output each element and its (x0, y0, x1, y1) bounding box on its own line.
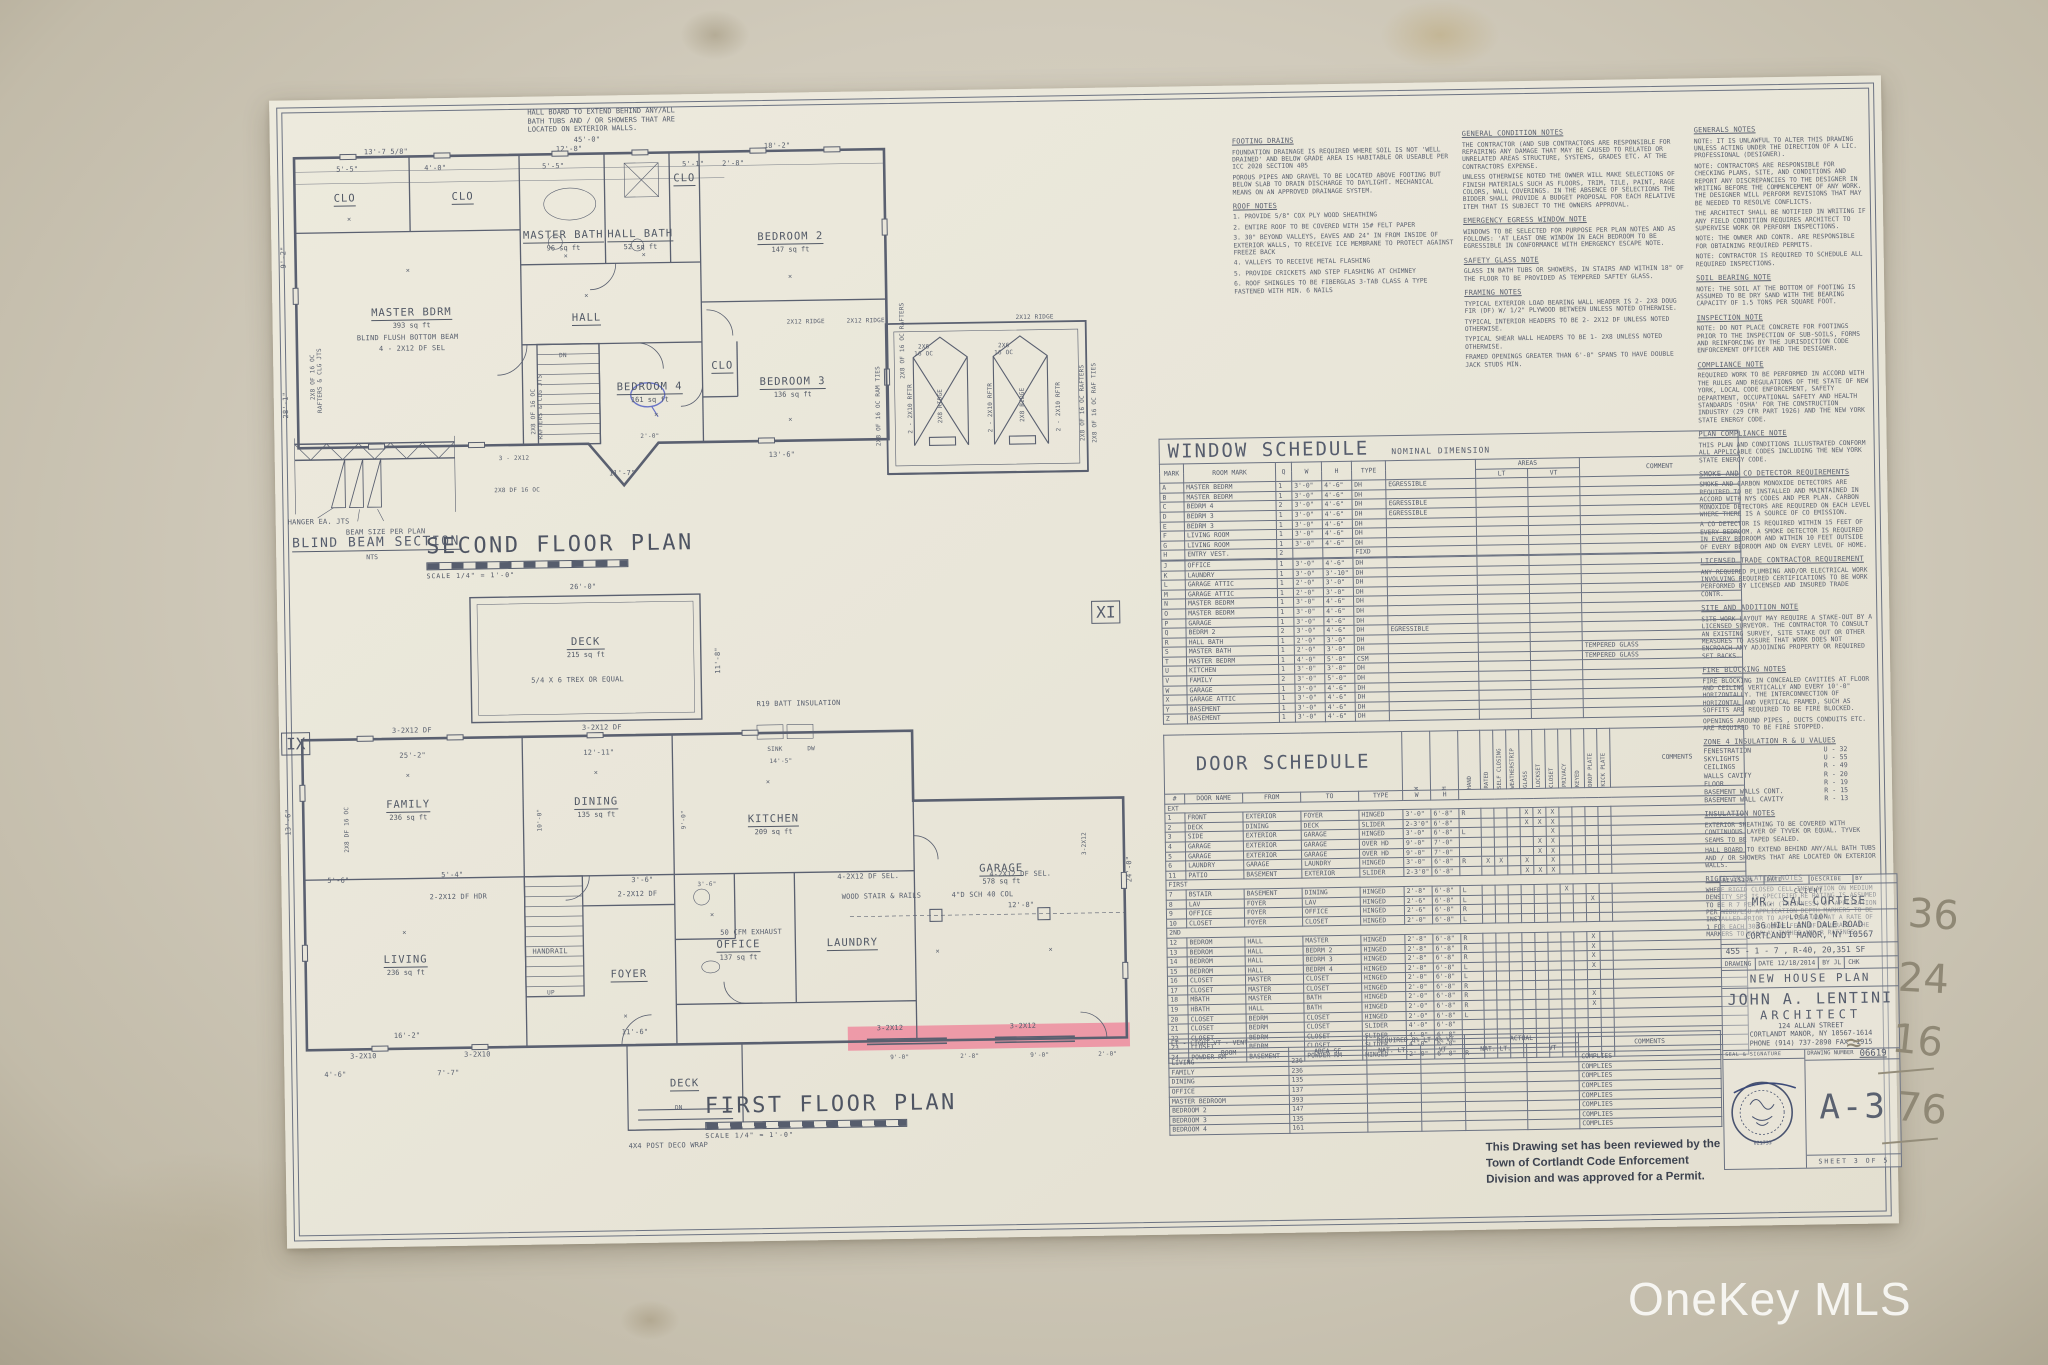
window-cell: DH (1355, 711, 1389, 721)
window-cell: R (1162, 638, 1186, 648)
window-col-header: TYPE (1351, 461, 1385, 481)
door-flag-cell (1575, 980, 1588, 990)
window-schedule-table: MARKROOM MARKQWHTYPEAREASCOMMENTLTVTAMAS… (1159, 455, 1744, 725)
door-flag-cell (1562, 980, 1575, 990)
window-cell: E (1160, 521, 1184, 531)
door-cell: 6'-8" (1432, 886, 1460, 896)
door-col-header: W (1402, 731, 1431, 790)
window-cell: 1 (1277, 588, 1293, 598)
door-flag-cell (1548, 970, 1561, 980)
door-flag-cell (1509, 933, 1522, 943)
blind-beam-title: BLIND BEAM SECTION (292, 534, 460, 553)
second-floor-annotation: × (641, 251, 646, 259)
insulation-value: R - 13 (1824, 794, 1848, 803)
window-cell: 3'-0" (1294, 597, 1324, 607)
door-cell: 3 (1165, 832, 1185, 842)
window-cell: O (1162, 609, 1186, 619)
door-flag-cell (1573, 855, 1586, 865)
door-flag-cell (1575, 1018, 1588, 1028)
door-schedule-title: DOOR SCHEDULE (1167, 757, 1400, 769)
door-flag-cell: X (1586, 893, 1599, 903)
door-flag-cell: X (1587, 941, 1600, 951)
note-paragraph: NOTE: CONTRACTORS ARE RESPONSIBLE FOR CH… (1694, 160, 1867, 207)
door-cell: 7'-0" (1431, 838, 1459, 848)
first-floor-annotation: WOOD STAIR & RAILS (842, 892, 922, 901)
second-floor-annotation: 9'-2" (279, 246, 287, 268)
note-heading: EMERGENCY EGRESS WINDOW NOTE (1463, 214, 1689, 226)
first-floor-annotation: 26'-0" (570, 583, 597, 591)
window-cell: DH (1353, 586, 1387, 596)
door-flag-cell: X (1587, 931, 1600, 941)
window-cell: 1 (1279, 693, 1295, 703)
window-col-header: ROOM MARK (1183, 462, 1275, 483)
door-cell: 6'-8" (1433, 934, 1461, 944)
door-cell: 21 (1168, 1024, 1188, 1034)
room-name: DECK (567, 636, 605, 651)
door-flag-cell (1573, 893, 1586, 903)
door-cell: 2'-8" (1405, 953, 1433, 963)
sheet-of: SHEET 3 OF 5 (1807, 1153, 1901, 1167)
light-vent-cell: BEDROOM 4 (1170, 1124, 1290, 1135)
door-flag-cell (1535, 971, 1548, 981)
door-cell: 2'-0" (1405, 915, 1433, 925)
window-cell: 4'-6" (1325, 683, 1355, 693)
window-cell: DH (1352, 499, 1386, 509)
door-cell (1459, 818, 1481, 828)
room-name: CLO (452, 191, 474, 205)
window-cell: N (1162, 599, 1186, 609)
window-cell: 2 (1277, 549, 1293, 559)
first-floor-annotation: 10'-0" (536, 809, 544, 832)
door-flag-cell (1560, 903, 1573, 913)
note-paragraph: GLASS IN BATH TUBS OR SHOWERS, IN STAIRS… (1464, 265, 1690, 283)
second-floor-annotation: 5'-5" (542, 162, 564, 170)
door-flag-cell (1520, 836, 1533, 846)
window-cell: 2'-0" (1293, 587, 1323, 597)
second-floor-room-label: MASTER BATH96 sq ft (523, 228, 604, 252)
window-cell: 3'-0" (1292, 500, 1322, 510)
door-flag-cell (1535, 961, 1548, 971)
handwritten-number: 76 (1894, 1084, 1949, 1134)
door-cell: 20 (1168, 1015, 1188, 1025)
door-cell: L (1459, 828, 1481, 838)
framing-detail-annotation: 2X12 RIDGE (1016, 313, 1054, 322)
first-floor-annotation: 11'-6" (622, 1028, 649, 1036)
revision-col: DESCRIBE (1809, 875, 1853, 884)
window-cell: 3'-10" (1323, 568, 1353, 578)
door-flag-cell (1572, 836, 1585, 846)
window-cell (1323, 548, 1353, 558)
window-cell: 4'-6" (1325, 702, 1355, 712)
door-cell: 18 (1168, 995, 1188, 1005)
window-cell: H (1161, 550, 1185, 560)
window-cell: 3'-0" (1294, 626, 1324, 636)
door-flag-cell (1483, 962, 1496, 972)
first-floor-room-label: FOYER (610, 968, 647, 983)
door-flag-cell (1482, 866, 1495, 876)
room-name: OFFICE (716, 938, 760, 953)
title-block: REVISION DATE DESCRIBE BY CLIENT MR. SAL… (1719, 873, 1902, 1170)
room-name: HALL BATH (607, 227, 673, 242)
seal-and-number-row: SEAL & SIGNATURE 021735 DRAWING NUMBE (1723, 1048, 1901, 1169)
room-area: 147 sq ft (757, 245, 823, 254)
door-flag-cell (1534, 903, 1547, 913)
drawing-chk: CHK (1845, 957, 1863, 968)
door-flag-cell (1575, 989, 1588, 999)
note-paragraph: THE CONTRACTOR (AND SUB CONTRACTORS ARE … (1462, 138, 1688, 171)
door-cell: 9'-0" (1403, 838, 1431, 848)
plan-title-text: FIRST FLOOR PLAN (705, 1090, 957, 1119)
door-flag-cell (1586, 855, 1599, 865)
door-flag-header: SELF CLOSING (1493, 730, 1507, 789)
door-flag-cell (1598, 845, 1611, 855)
first-floor-annotation: 3-2X12 (1081, 832, 1089, 855)
window-cell: B (1160, 493, 1184, 503)
window-cell: 3'-0" (1323, 577, 1353, 587)
door-col-header-text: HAND (1466, 775, 1472, 789)
second-floor-annotation: 2X12 RIDGE (787, 318, 825, 327)
door-cell: 6'-8" (1434, 1010, 1462, 1020)
door-flag-cell (1574, 941, 1587, 951)
light-vent-cell (1368, 1122, 1422, 1132)
second-floor-annotation: 2'-8" (722, 159, 744, 167)
window-cell: 3'-0" (1293, 538, 1323, 548)
second-floor-annotation: 45'-0" (574, 136, 601, 144)
first-floor-annotation: R19 BATT INSULATION (757, 699, 841, 708)
door-cell: 4'-0" (1406, 1020, 1434, 1030)
door-cell: R (1462, 991, 1484, 1001)
door-flag-cell (1523, 990, 1536, 1000)
door-col-header: # (1165, 794, 1185, 804)
framing-detail-labels: 2X616 OC2X616 OC2X8 RIDGE2X8 RIDGE2 - 2X… (878, 313, 1096, 491)
note-paragraph: 3. 30" BEYOND VALLEYS, EAVES AND 24" IN … (1233, 231, 1455, 257)
location-row: LOCATION 36 HILL AND DALE ROAD CORTLANDT… (1721, 909, 1897, 945)
door-flag-header-text: LOCKSET (1536, 764, 1542, 788)
first-floor-annotation: × (1048, 946, 1053, 954)
door-flag-cell (1508, 885, 1521, 895)
window-cell: DH (1354, 615, 1388, 625)
note-paragraph: TYPICAL EXTERIOR LOAD BEARING WALL HEADE… (1464, 297, 1690, 315)
window-cell: DH (1352, 480, 1386, 490)
door-cell: 6'-8" (1432, 895, 1460, 905)
framing-detail-annotation: 2X8 OF 16 OC RAF TIES (1090, 363, 1099, 443)
door-flag-cell: X (1521, 856, 1534, 866)
door-flag-cell (1562, 999, 1575, 1009)
scale-note: SCALE 1/4" = 1'-0" (427, 568, 695, 580)
window-cell: Z (1163, 714, 1187, 724)
first-floor-room-label: LIVING236 sq ft (384, 953, 428, 977)
second-floor-annotation: × (406, 267, 411, 275)
door-flag-cell (1585, 826, 1598, 836)
door-cell: L (1461, 972, 1483, 982)
door-cell: 6'-8" (1431, 818, 1459, 828)
first-floor-annotation: 3-2X10 (464, 1050, 491, 1058)
door-flag-cell (1547, 903, 1560, 913)
door-flag-cell (1522, 952, 1535, 962)
room-name: LIVING (384, 953, 428, 968)
door-flag-cell (1522, 913, 1535, 923)
door-flag-cell (1494, 846, 1507, 856)
door-cell: 2'-8" (1404, 886, 1432, 896)
second-floor-room-label: BEDROOM 2147 sq ft (757, 230, 823, 254)
door-cell: 14 (1167, 957, 1187, 967)
door-flag-cell (1483, 943, 1496, 953)
door-flag-cell (1549, 990, 1562, 1000)
door-schedule-title-cell: DOOR SCHEDULE (1164, 732, 1403, 795)
door-cell (1459, 837, 1481, 847)
second-floor-annotation: × (654, 411, 659, 419)
first-floor-room-label: KITCHEN209 sq ft (748, 812, 800, 836)
architect-phone: PHONE (914) 737-2890 FAX -1915 (1727, 1037, 1895, 1048)
window-cell: 4'-6" (1323, 538, 1353, 548)
door-flag-cell (1561, 941, 1574, 951)
second-floor-room-label: HALL BATH52 sq ft (607, 227, 673, 251)
door-flag-cell (1601, 998, 1614, 1008)
window-cell: F (1160, 531, 1184, 541)
client-name: MR. SAL CORTESE (1725, 893, 1893, 909)
window-cell: 4'-6" (1322, 500, 1352, 510)
second-floor-annotation: 3 - 2X12 (499, 455, 530, 463)
door-cell: 6'-8" (1434, 1001, 1462, 1011)
window-cell: C (1160, 502, 1184, 512)
window-cell: 3'-0" (1294, 616, 1324, 626)
door-flag-cell (1559, 826, 1572, 836)
door-flag-cell (1481, 837, 1494, 847)
door-flag-cell: X (1587, 960, 1600, 970)
door-flag-cell: X (1546, 807, 1559, 817)
door-cell: 8 (1166, 899, 1186, 909)
note-heading: ROOF NOTES (1233, 199, 1455, 211)
door-flag-cell (1547, 894, 1560, 904)
window-cell: DH (1354, 606, 1388, 616)
window-cell: CSM (1354, 654, 1388, 664)
door-flag-cell (1535, 913, 1548, 923)
room-name: MASTER BDRM (371, 306, 452, 321)
second-floor-annotation: × (347, 215, 352, 223)
second-floor-room-label: CLO (334, 192, 356, 206)
room-name: FOYER (610, 968, 647, 983)
door-col-header: W (1403, 790, 1431, 800)
stain (680, 10, 750, 60)
drawing-date: DATE 12/18/2014 (1755, 957, 1819, 969)
door-flag-cell (1521, 904, 1534, 914)
door-flag-cell (1481, 818, 1494, 828)
second-floor-annotation: 5'-1" (682, 160, 704, 168)
note-paragraph: THE ARCHITECT SHALL BE NOTIFIED IN WRITI… (1695, 208, 1867, 233)
door-flag-cell (1510, 981, 1523, 991)
door-flag-cell (1574, 932, 1587, 942)
window-cell: 3'-0" (1292, 481, 1322, 491)
door-flag-cell (1573, 864, 1586, 874)
second-floor-annotation: 2X8 DF 16 OC (494, 487, 540, 496)
blind-beam-nts: NTS (366, 553, 378, 561)
door-flag-cell (1572, 845, 1585, 855)
note-heading: INSPECTION NOTE (1697, 311, 1869, 322)
window-cell: 4'-0" (1294, 655, 1324, 665)
door-flag-header: KICK PLATE (1597, 728, 1611, 787)
door-schedule-table: DOOR SCHEDULEWHHANDRATEDSELF CLOSINGWEAT… (1163, 726, 1749, 1064)
door-cell: 6'-8" (1433, 972, 1461, 982)
door-flag-cell (1599, 883, 1612, 893)
client-row: CLIENT MR. SAL CORTESE (1721, 883, 1897, 912)
first-floor-annotation: 13'-6" (284, 809, 292, 836)
general-condition-notes-column: GENERAL CONDITION NOTESTHE CONTRACTOR (A… (1462, 120, 1692, 368)
door-flag-header: GLASS (1519, 729, 1533, 788)
framing-detail-annotation: 16 OC (994, 349, 1013, 357)
first-floor-room-label: DECK215 sq ft (567, 636, 605, 660)
framing-detail-annotation: 2X8 OF 16 OC RAM TIES (874, 366, 883, 446)
window-cell: 3'-0" (1294, 607, 1324, 617)
framing-detail-annotation: 2 - 2X10 RFTR (907, 384, 916, 434)
framing-detail-annotation: 2X8 RIDGE (1019, 388, 1028, 422)
note-paragraph: REQUIRED WORK TO BE PERFORMED IN ACCORD … (1698, 370, 1871, 425)
plan-title-text: SECOND FLOOR PLAN (426, 530, 694, 559)
door-cell: 6'-8" (1432, 866, 1460, 876)
window-cell: 4'-6" (1322, 509, 1352, 519)
note-paragraph: FRAMED OPENINGS GREATER THAN 6'-0" SPANS… (1465, 351, 1691, 369)
first-floor-room-label: OFFICE137 sq ft (716, 938, 760, 962)
framing-detail-annotation: 2X8 OF 16 OC RAFTERS (1078, 365, 1087, 441)
door-flag-cell (1587, 970, 1600, 980)
door-flag-cell (1494, 837, 1507, 847)
window-cell: 5'-0" (1324, 654, 1354, 664)
door-flag-cell (1547, 884, 1560, 894)
room-area: 393 sq ft (371, 321, 452, 330)
door-flag-cell (1600, 950, 1613, 960)
second-floor-annotation: 11'-7" (609, 469, 636, 477)
door-cell: 3'-0" (1403, 809, 1431, 819)
door-flag-header-text: GLASS (1523, 771, 1529, 788)
door-flag-cell (1483, 952, 1496, 962)
door-flag-cell (1494, 818, 1507, 828)
door-flag-cell (1599, 902, 1612, 912)
room-name: BEDROOM 2 (757, 230, 823, 245)
door-flag-cell: X (1520, 808, 1533, 818)
door-cell: 7 (1166, 890, 1186, 900)
door-flag-cell: X (1546, 826, 1559, 836)
door-flag-header-text: KICK PLATE (1601, 753, 1608, 787)
note-paragraph: 2. ENTIRE ROOF TO BE COVERED WITH 15# FE… (1233, 221, 1455, 232)
door-flag-cell (1562, 989, 1575, 999)
door-flag-cell (1533, 827, 1546, 837)
window-cell: DH (1352, 528, 1386, 538)
door-flag-cell (1574, 912, 1587, 922)
door-cell: 19 (1168, 1005, 1188, 1015)
door-flag-cell (1601, 1017, 1614, 1027)
architect-seal-icon: 021735 (1721, 1064, 1802, 1157)
door-cell: R (1461, 952, 1483, 962)
window-cell: A (1160, 483, 1184, 493)
door-flag-cell (1481, 827, 1494, 837)
door-cell: 2'-6" (1404, 896, 1432, 906)
window-col-header: W (1291, 462, 1321, 482)
seal-label: SEAL & SIGNATURE (1723, 1050, 1804, 1060)
framing-detail-annotation: 2X8 RIDGE (937, 389, 946, 423)
door-flag-cell (1574, 960, 1587, 970)
door-flag-cell (1507, 817, 1520, 827)
door-flag-cell (1507, 808, 1520, 818)
second-floor-annotation: 5'-5" (336, 165, 358, 173)
door-flag-cell (1497, 981, 1510, 991)
door-cell: 7'-0" (1431, 847, 1459, 857)
door-flag-cell (1601, 1008, 1614, 1018)
door-flag-cell (1600, 960, 1613, 970)
second-floor-annotation: 12'-8" (556, 145, 583, 153)
door-flag-cell: X (1533, 817, 1546, 827)
door-cell: R (1460, 904, 1482, 914)
door-cell: 2 (1165, 823, 1185, 833)
window-cell: 1 (1277, 559, 1293, 569)
door-col-header-text: H (1442, 786, 1448, 789)
door-flag-cell (1586, 864, 1599, 874)
door-flag-cell (1496, 942, 1509, 952)
room-area: 161 sq ft (617, 395, 683, 404)
first-floor-annotation: HANDRAIL (532, 947, 567, 956)
door-flag-cell (1496, 962, 1509, 972)
window-cell: 2'-0" (1293, 578, 1323, 588)
door-flag-cell (1536, 1018, 1549, 1028)
first-floor-annotation: 3-2X12 (877, 1024, 904, 1032)
framing-detail-annotation: 16 OC (914, 350, 933, 358)
door-flag-cell (1495, 894, 1508, 904)
door-cell: 6'-8" (1433, 953, 1461, 963)
door-flag-cell (1598, 816, 1611, 826)
note-paragraph: NOTE: THE SOIL AT THE BOTTOM OF FOOTING … (1696, 283, 1868, 308)
light-vent-cell (1466, 1120, 1528, 1131)
door-flag-cell (1601, 979, 1614, 989)
door-flag-header-text: SELF CLOSING (1496, 748, 1503, 789)
door-flag-cell (1521, 884, 1534, 894)
door-flag-cell (1482, 895, 1495, 905)
door-flag-cell (1507, 837, 1520, 847)
handwritten-number: 36 (1906, 890, 1960, 939)
door-col-header: H (1431, 790, 1459, 800)
window-cell: 2 (1279, 674, 1295, 684)
window-col-header: COMMENT (1579, 455, 1739, 477)
door-cell: 2-3'0" (1404, 867, 1432, 877)
second-floor-annotation: × (563, 252, 568, 260)
first-floor-annotation: 50 CFM EXHAUST (720, 928, 782, 937)
door-flag-cell (1599, 854, 1612, 864)
window-cell: J (1161, 561, 1185, 571)
note-paragraph: UNLESS OTHERWISE NOTED THE OWNER WILL MA… (1462, 171, 1689, 212)
window-cell: 1 (1278, 598, 1294, 608)
door-flag-cell (1574, 951, 1587, 961)
room-name: LAUNDRY (827, 936, 878, 951)
door-cell: L (1460, 895, 1482, 905)
first-floor-annotation: 3'-6" (697, 881, 716, 889)
window-cell: DH (1355, 692, 1389, 702)
door-flag-cell: X (1587, 951, 1600, 961)
first-floor-annotation: × (710, 911, 715, 919)
door-col-header-text: W (1414, 786, 1420, 789)
door-flag-cell (1520, 846, 1533, 856)
architect-row: JOHN A. LENTINI ARCHITECT 124 ALLAN STRE… (1722, 986, 1899, 1051)
second-floor-annotation: 2'-0" (640, 433, 659, 441)
second-floor-annotation: DN (559, 352, 567, 360)
door-flag-cell (1559, 817, 1572, 827)
door-flag-cell: X (1533, 807, 1546, 817)
door-flag-cell (1560, 865, 1573, 875)
second-floor-annotation: 13'-7 5/8" (364, 148, 408, 157)
window-cell: 3'-0" (1295, 693, 1325, 703)
room-name: BEDROOM 4 (617, 380, 683, 395)
drawing-label: DRAWING (1722, 958, 1756, 970)
blueprint-sheet: HALL BOARD TO EXTEND BEHIND ANY/ALL BATH… (269, 75, 1899, 1248)
door-flag-cell (1536, 1009, 1549, 1019)
door-flag-cell: X (1560, 884, 1573, 894)
second-floor-annotation: 13'-6" (769, 451, 796, 459)
